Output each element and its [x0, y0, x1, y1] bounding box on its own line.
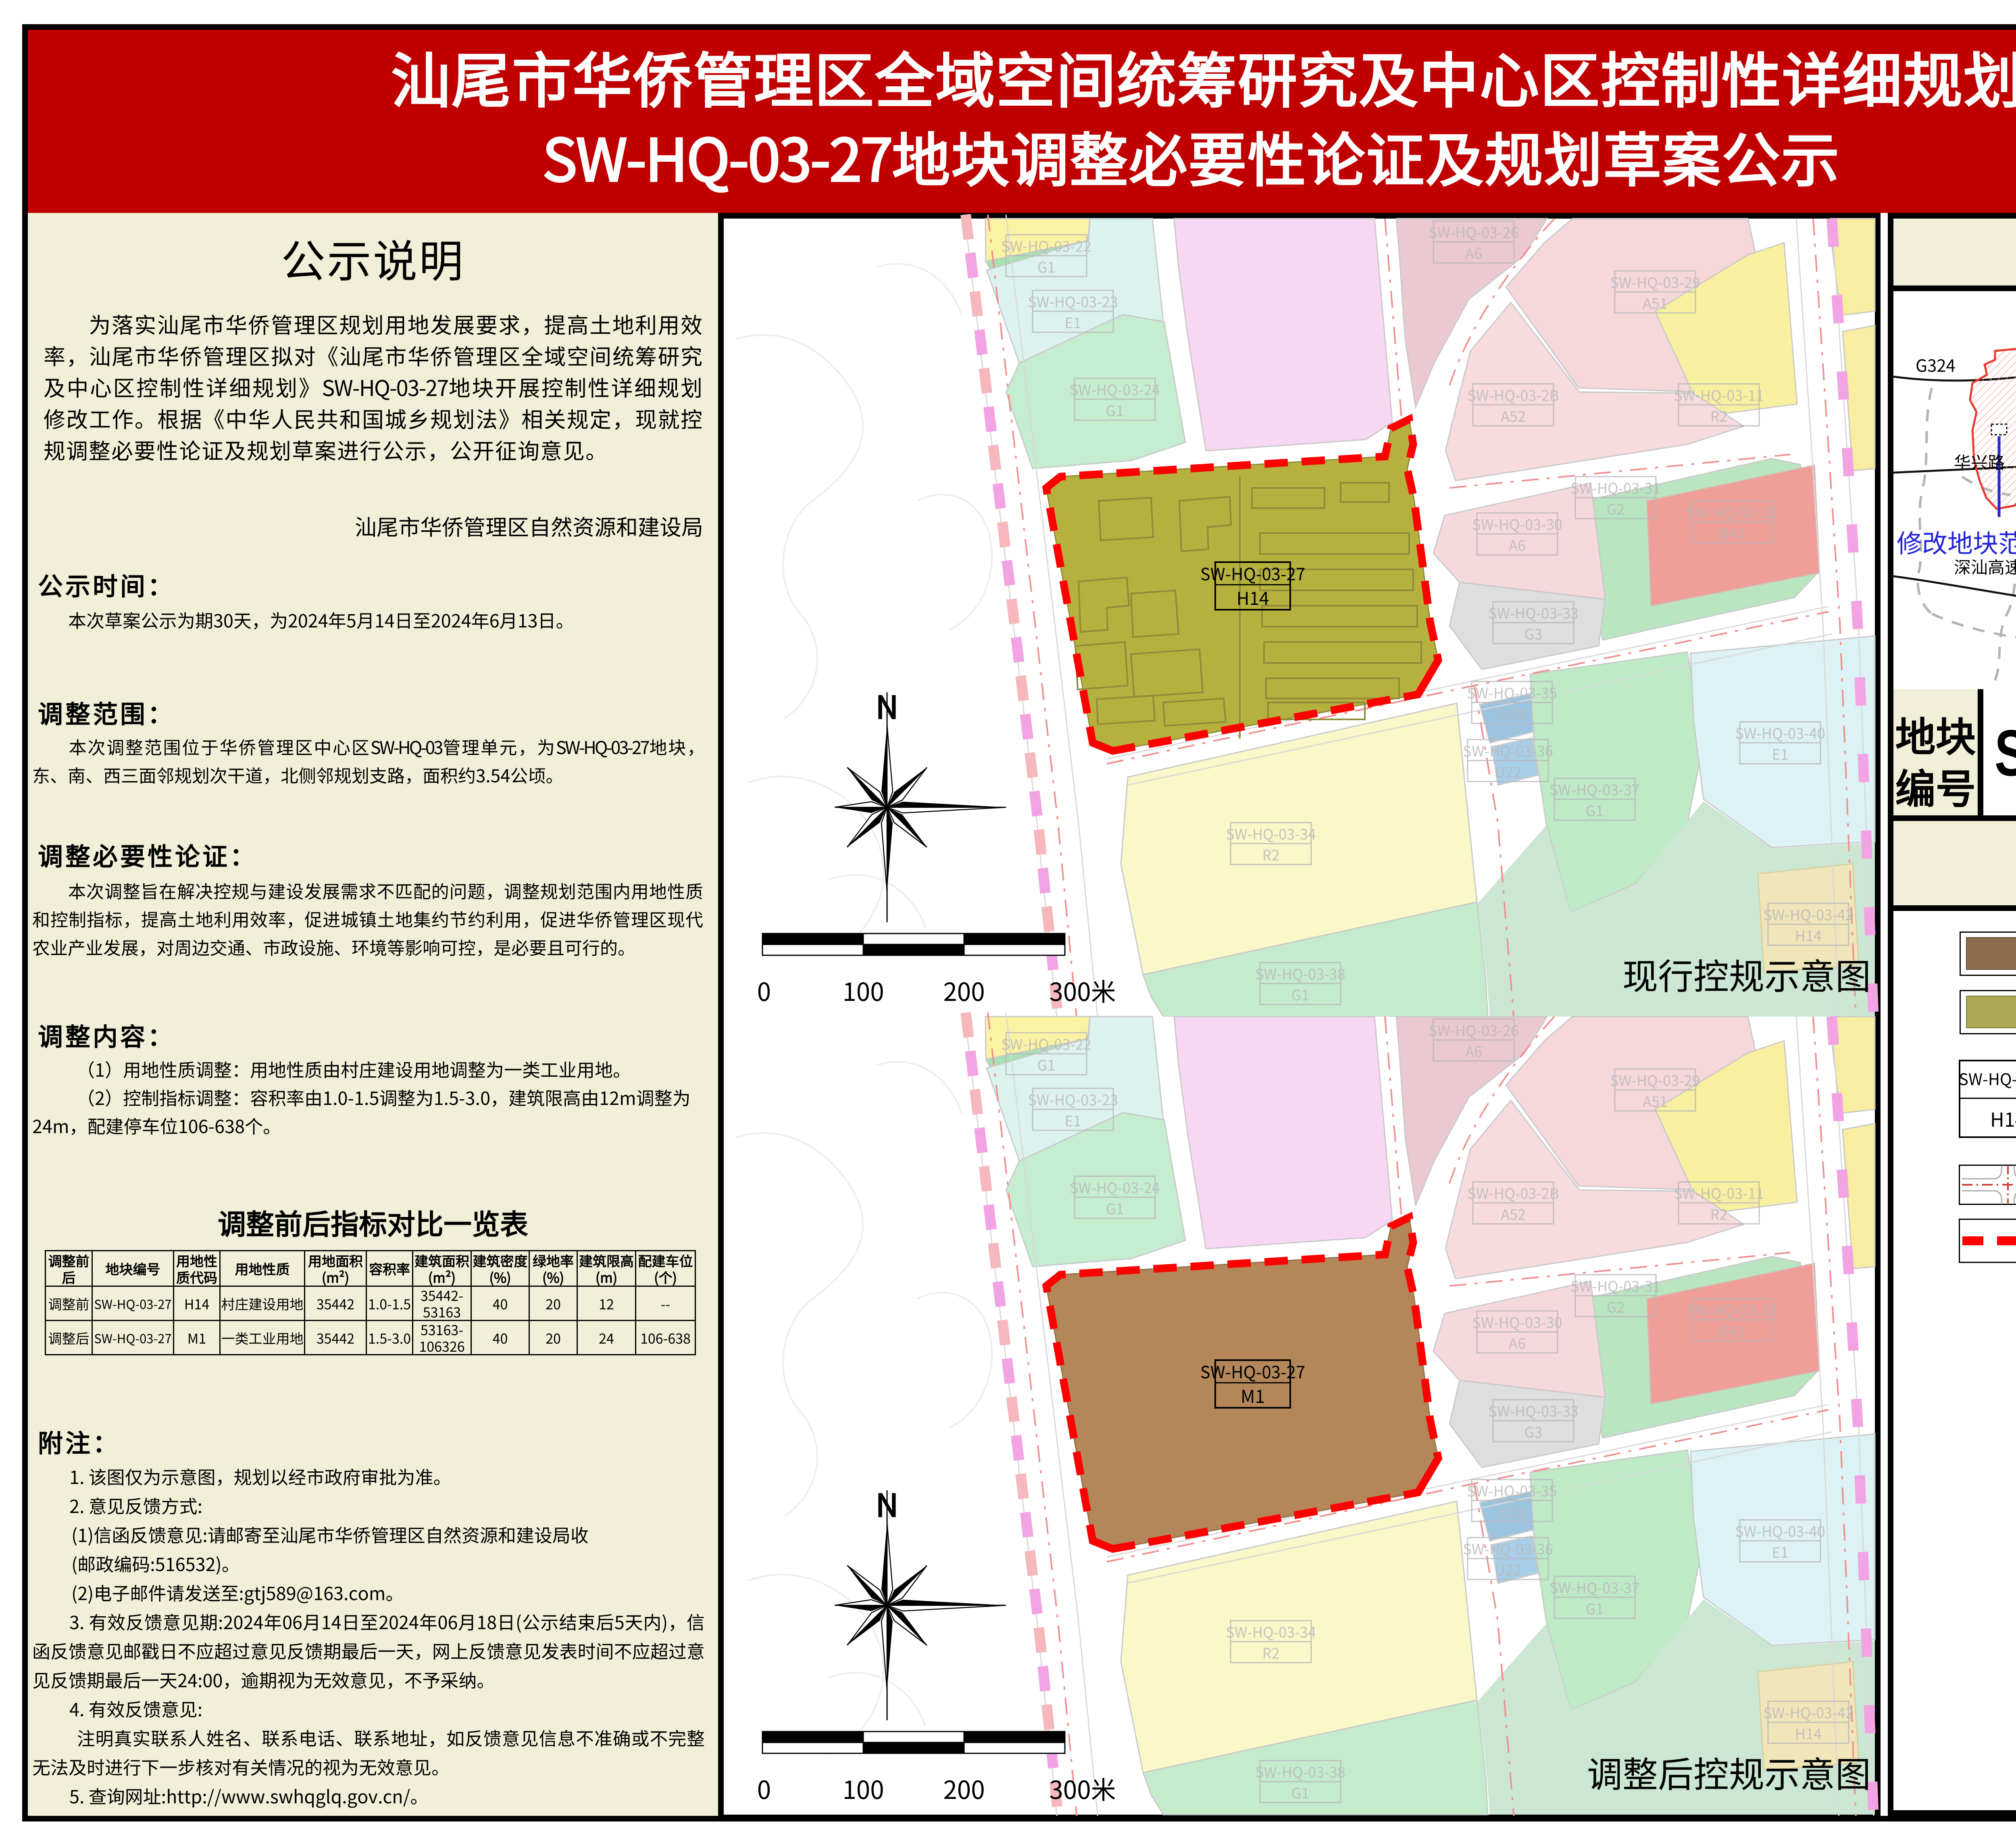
svg-text:SW-HQ-03-27: SW-HQ-03-27: [1200, 1359, 1306, 1384]
svg-text:现行控规示意图: 现行控规示意图: [1622, 948, 1871, 1000]
svg-text:深汕高速: 深汕高速: [1954, 554, 2016, 579]
svg-text:华兴路: 华兴路: [1954, 449, 2005, 474]
svg-text:M1: M1: [1241, 1382, 1265, 1408]
svg-text:调整后控规示意图: 调整后控规示意图: [1587, 1746, 1871, 1798]
svg-text:H14: H14: [1237, 584, 1269, 610]
svg-text:SW-HQ-03-27: SW-HQ-03-27: [1200, 561, 1306, 586]
svg-text:G324: G324: [1916, 352, 1956, 377]
